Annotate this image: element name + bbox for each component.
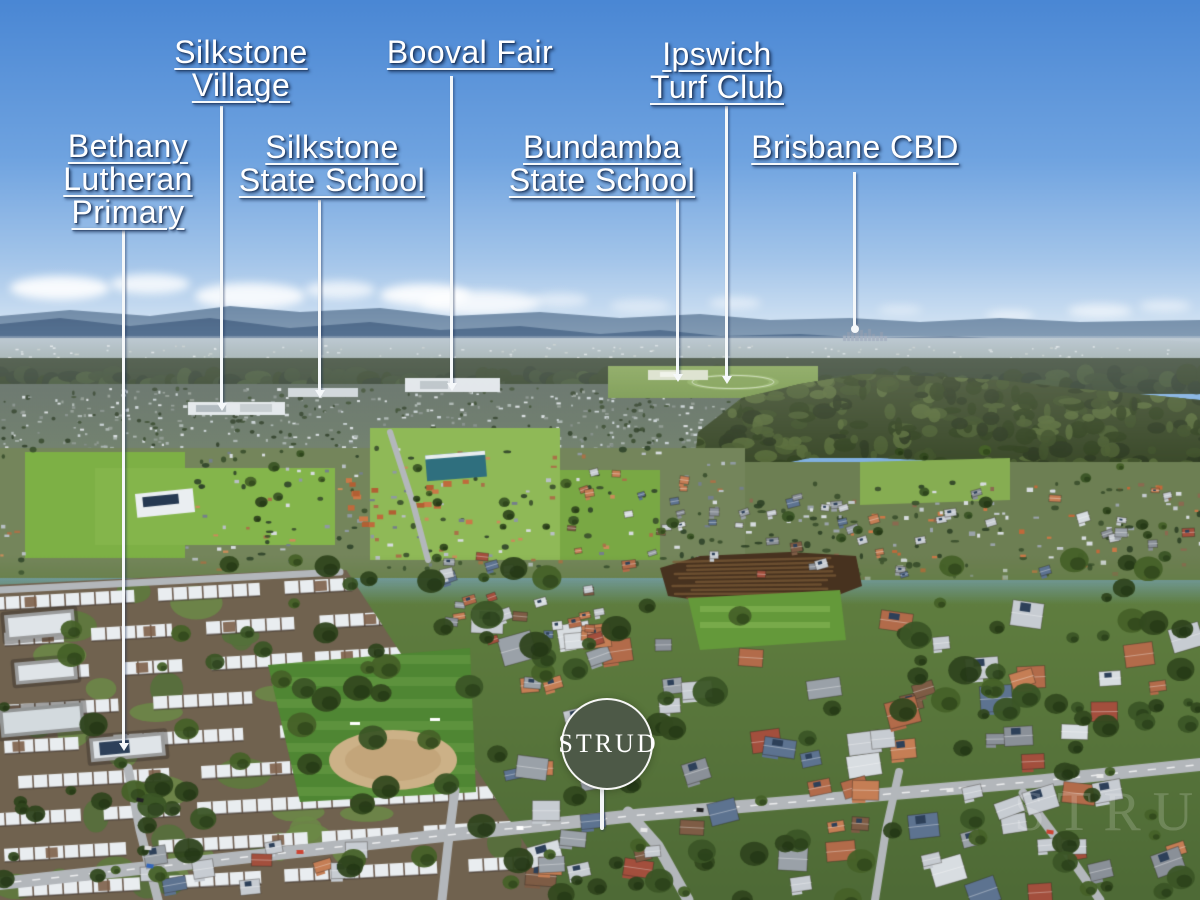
badge-pointer-line xyxy=(600,786,604,830)
leader-line-bundamba-state-school xyxy=(676,199,679,375)
strud-badge: STRUD xyxy=(561,698,653,790)
label-brisbane-cbd: Brisbane CBD xyxy=(751,131,959,164)
line-tip xyxy=(722,376,732,384)
label-bethany-lutheran-primary: Bethany Lutheran Primary xyxy=(63,130,193,229)
aerial-photo-stage: STRUD Bethany Lutheran Primary Silkstone… xyxy=(0,0,1200,900)
line-tip xyxy=(315,390,325,398)
label-silkstone-village: Silkstone Village xyxy=(174,36,307,102)
label-ipswich-turf-club: Ipswich Turf Club xyxy=(650,38,784,104)
leader-line-brisbane-cbd xyxy=(853,172,856,328)
leader-line-silkstone-state-school xyxy=(318,200,321,391)
label-silkstone-state-school: Silkstone State School xyxy=(239,131,425,197)
strud-badge-text: STRUD xyxy=(555,729,658,759)
line-tip xyxy=(217,403,227,411)
label-bundamba-state-school: Bundamba State School xyxy=(509,131,695,197)
leader-line-ipswich-turf-club xyxy=(725,106,728,377)
line-end-dot xyxy=(851,325,859,333)
line-tip xyxy=(447,383,457,391)
line-tip xyxy=(673,374,683,382)
watermark-text: STRUD xyxy=(1014,780,1200,844)
leader-line-bethany-lutheran-primary xyxy=(122,230,125,744)
leader-line-silkstone-village xyxy=(220,106,223,404)
line-tip xyxy=(119,743,129,751)
leader-line-booval-fair xyxy=(450,76,453,384)
label-booval-fair: Booval Fair xyxy=(387,36,553,69)
